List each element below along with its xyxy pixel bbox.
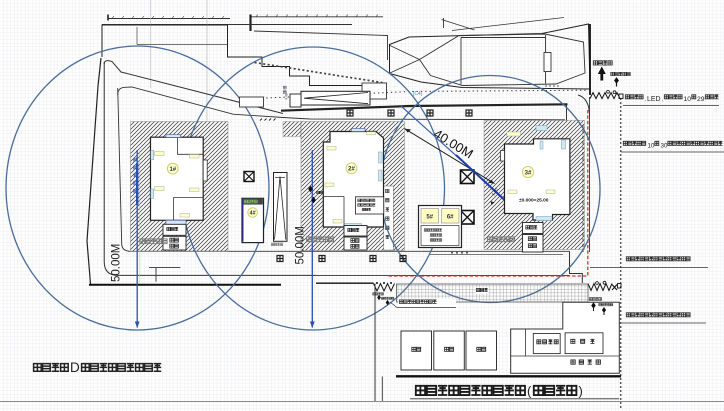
svg-text:±0.000=25.00: ±0.000=25.00	[519, 198, 549, 204]
svg-text:50.00M: 50.00M	[295, 226, 307, 264]
svg-text:LED: LED	[647, 96, 661, 103]
svg-text:29: 29	[697, 96, 705, 103]
svg-text:10: 10	[684, 96, 692, 103]
svg-text:3#: 3#	[525, 170, 532, 176]
svg-text:4.48: 4.48	[285, 93, 289, 100]
svg-text:50.00M: 50.00M	[111, 244, 123, 282]
svg-text:,: ,	[662, 97, 663, 103]
svg-text:): )	[579, 384, 583, 399]
svg-text:4#: 4#	[250, 211, 256, 217]
svg-text:1#: 1#	[169, 167, 176, 173]
svg-text:[C4]: [C4]	[413, 91, 423, 97]
svg-text:D: D	[70, 360, 80, 375]
svg-text:(: (	[527, 384, 532, 399]
svg-text:5#: 5#	[426, 215, 433, 221]
svg-text:10: 10	[648, 143, 655, 150]
svg-text:,: ,	[645, 97, 646, 103]
svg-text:30: 30	[661, 143, 668, 150]
svg-text:2#: 2#	[348, 167, 355, 173]
svg-text:6#: 6#	[447, 215, 454, 221]
